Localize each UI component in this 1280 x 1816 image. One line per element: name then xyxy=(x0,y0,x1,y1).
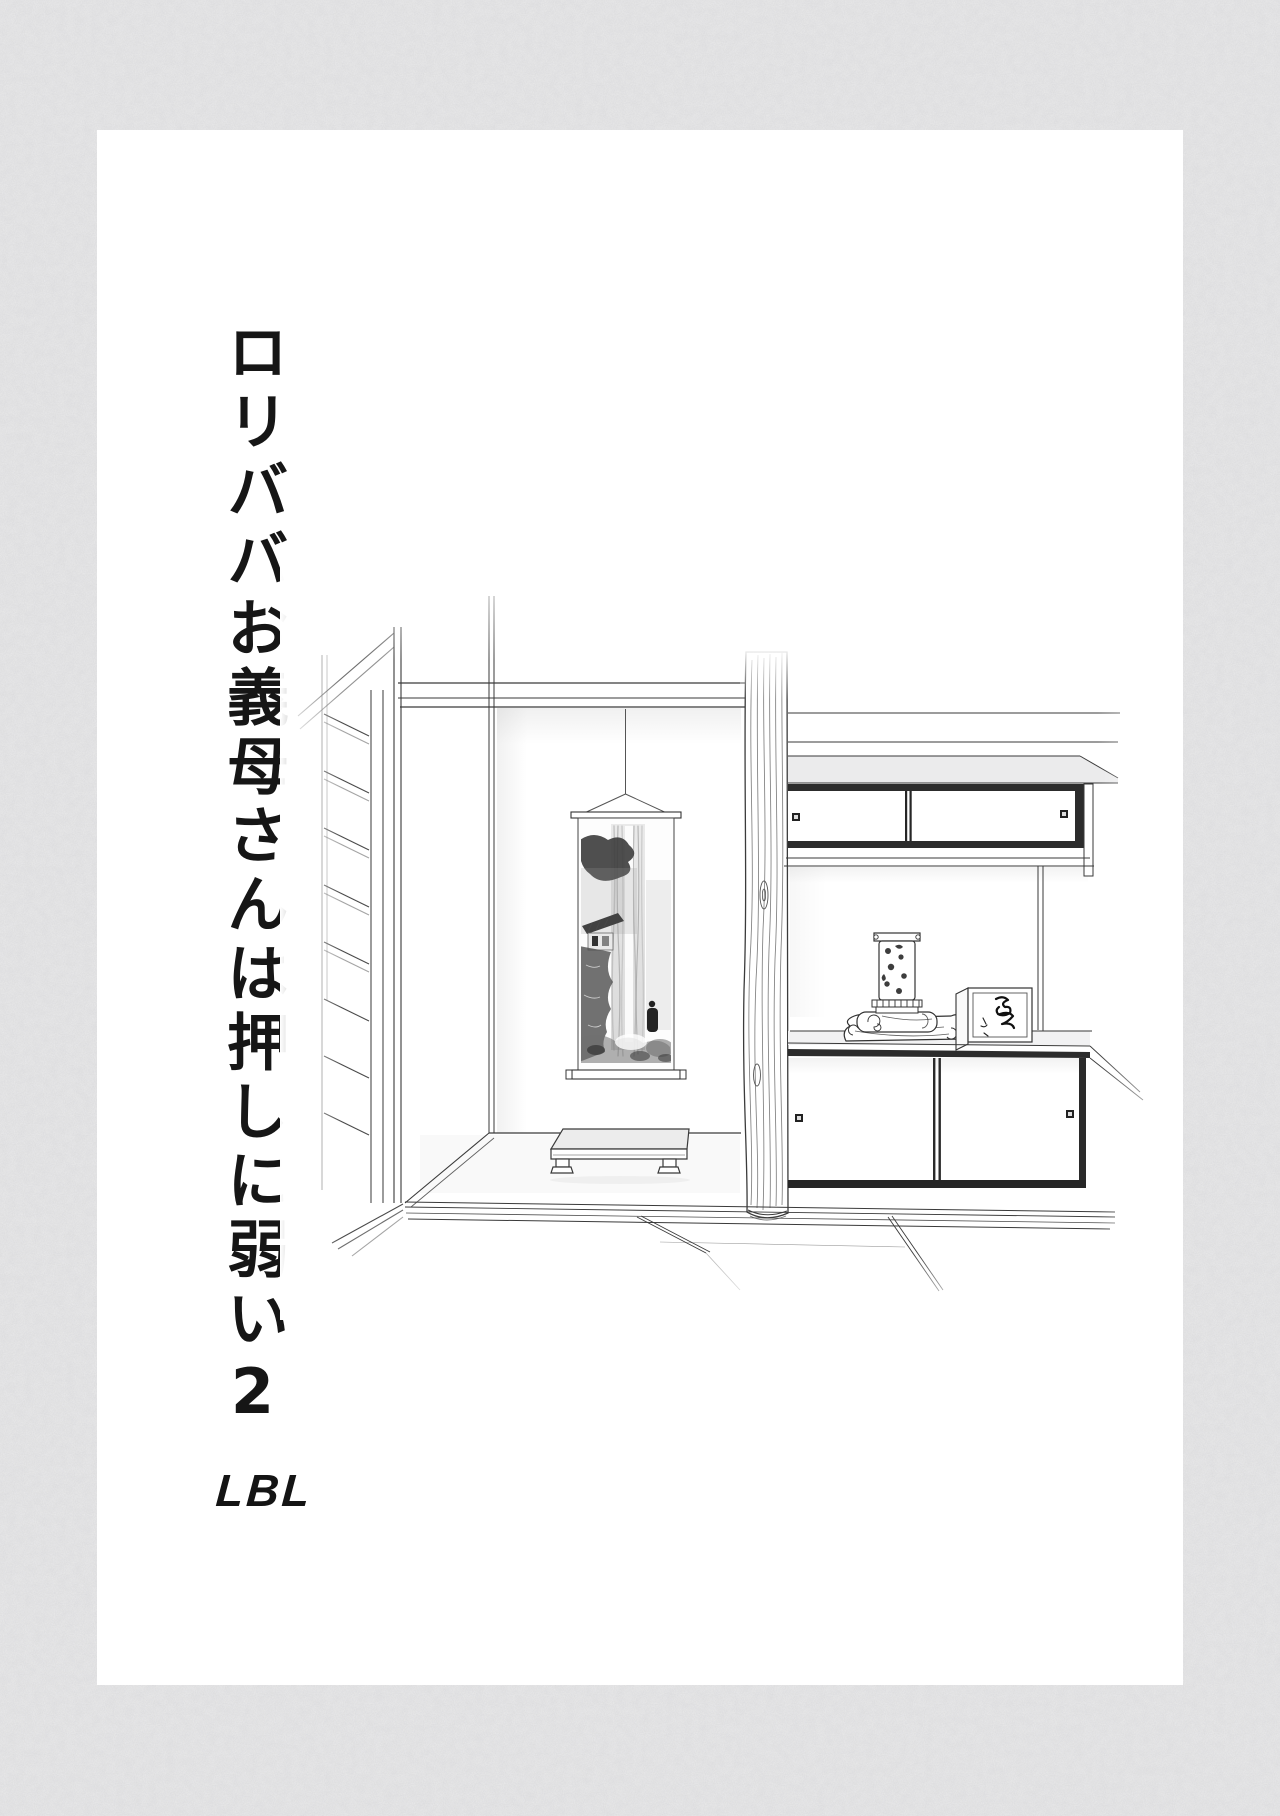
scroll-bottom-rod xyxy=(572,1070,680,1079)
alcove-pillar xyxy=(740,645,792,1220)
cabinet-handle-icon xyxy=(795,1114,803,1122)
scroll-top-rod xyxy=(571,812,681,818)
artist-credit: LBL xyxy=(214,1465,314,1517)
page-title: ロリババお義母さんは押しに弱い2 xyxy=(221,320,283,1450)
doujin-cover-page: ロリババお義母さんは押しに弱い2 LBL xyxy=(97,130,1183,1685)
calligraphy-box xyxy=(956,988,1032,1050)
cabinet-handle-icon xyxy=(1066,1110,1074,1118)
upper-cabinet xyxy=(784,784,1094,876)
sketch-fade xyxy=(280,550,1183,1320)
scanned-page: { "page": { "background": "#e6e6e7", "pa… xyxy=(0,0,1280,1816)
cabinet-cornice xyxy=(788,713,1120,783)
lower-cabinet xyxy=(788,1058,1086,1188)
ceiling-beam xyxy=(398,596,752,1133)
cabinet-handle-icon xyxy=(1060,810,1068,818)
room-illustration xyxy=(280,550,1183,1320)
cabinet-handle-icon xyxy=(792,813,800,821)
ornate-lamp xyxy=(857,933,937,1032)
hanging-scroll xyxy=(566,709,686,1079)
